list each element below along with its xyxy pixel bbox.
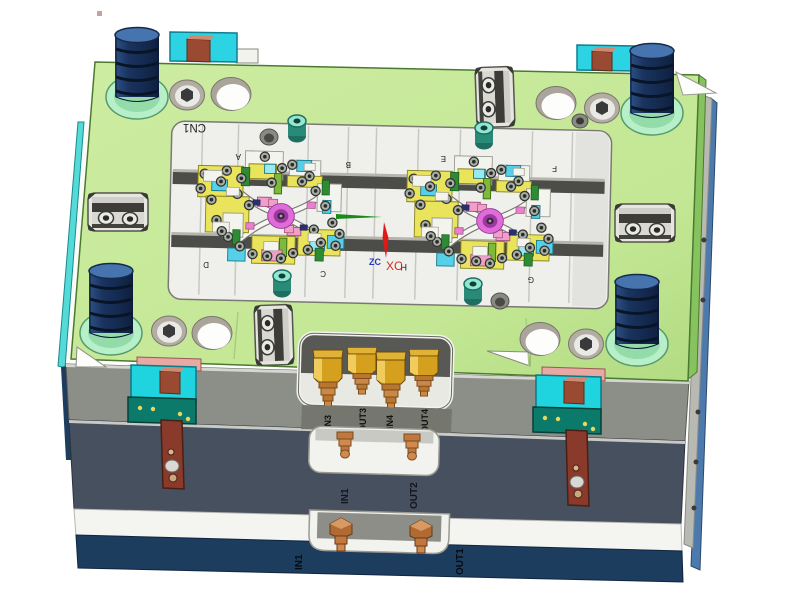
svg-text:D: D <box>203 260 209 269</box>
svg-text:IN1: IN1 <box>340 488 351 504</box>
svg-text:OUT2: OUT2 <box>409 482 420 509</box>
svg-text:F: F <box>552 164 557 173</box>
svg-text:G: G <box>528 275 534 284</box>
svg-text:OUT1: OUT1 <box>455 548 466 575</box>
svg-text:IN4: IN4 <box>385 415 395 429</box>
svg-text:ZC: ZC <box>369 257 381 267</box>
svg-text:XC: XC <box>386 259 403 273</box>
svg-text:C: C <box>320 269 326 278</box>
svg-text:CN1: CN1 <box>183 121 206 133</box>
svg-text:E: E <box>441 154 446 163</box>
svg-text:IN1: IN1 <box>294 554 305 570</box>
svg-text:A: A <box>235 152 241 161</box>
svg-text:B: B <box>346 160 351 169</box>
